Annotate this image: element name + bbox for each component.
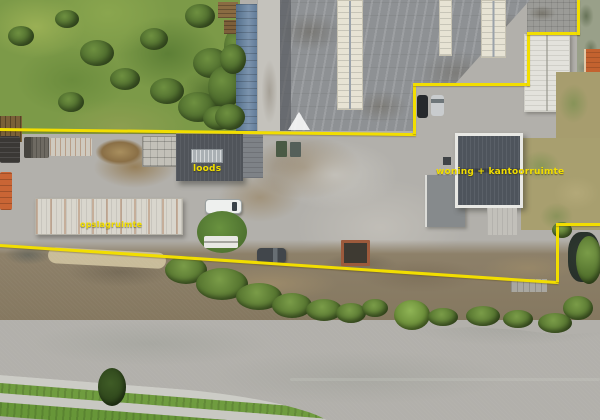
bank-bush [428, 308, 458, 326]
paver-roof [527, 0, 578, 33]
bush [140, 28, 168, 50]
house-patio [487, 208, 517, 235]
trailer-white [50, 138, 92, 156]
bush [110, 68, 140, 90]
container-stack [142, 136, 178, 167]
roof-edge-band [280, 0, 291, 131]
storage-building [35, 198, 183, 235]
bank-hedge-right [576, 236, 600, 284]
bank-bush [503, 310, 533, 328]
bush [80, 40, 114, 66]
orange-truck [0, 172, 12, 210]
skylight-strip [337, 0, 363, 110]
skylight-strip [439, 0, 452, 56]
bush [55, 10, 79, 28]
towpath-tree [98, 368, 126, 406]
truck-crane [24, 137, 49, 158]
boundary-line [527, 32, 530, 86]
bush [185, 4, 215, 28]
parked-car-silver [431, 95, 444, 116]
bush-overhang [215, 104, 245, 130]
boundary-line [556, 223, 600, 226]
label-opslagruimte: opslagruimte [80, 220, 142, 229]
utility-bins [290, 142, 301, 157]
aerial-photo: loods opslagruimte woning + kantoorruimt… [0, 0, 600, 420]
dry-lawn [521, 138, 600, 230]
parked-car-black [417, 95, 428, 118]
picnic-table [204, 236, 238, 248]
roof-triangle-marking [288, 112, 310, 130]
label-woning-kantoorruimte: woning + kantoorruimte [436, 167, 564, 177]
bank-bush-bright [394, 300, 430, 330]
bank-bush [466, 306, 500, 326]
loods-skylight [191, 149, 223, 163]
utility-bins [276, 141, 287, 157]
truck-dark [0, 136, 20, 163]
grass-mound [197, 211, 247, 253]
bush [8, 26, 34, 46]
wake-line [290, 378, 600, 381]
bank-bush [362, 299, 388, 317]
skylight-strip [481, 0, 506, 58]
boundary-line [527, 32, 580, 35]
loods-extension [243, 135, 263, 178]
label-loods: loods [193, 164, 221, 174]
bush-overhang [220, 44, 246, 74]
wood-pallets [218, 2, 238, 18]
brick-pit [341, 240, 370, 266]
boundary-line [413, 83, 530, 86]
woodchip-pile [94, 138, 146, 166]
bank-bush [563, 296, 593, 320]
dark-shed [443, 157, 451, 165]
boundary-line [556, 224, 559, 282]
boundary-line [413, 84, 416, 134]
boundary-line [577, 0, 580, 35]
bush [58, 92, 84, 112]
van-windshield [232, 202, 237, 211]
driveway [257, 0, 282, 131]
